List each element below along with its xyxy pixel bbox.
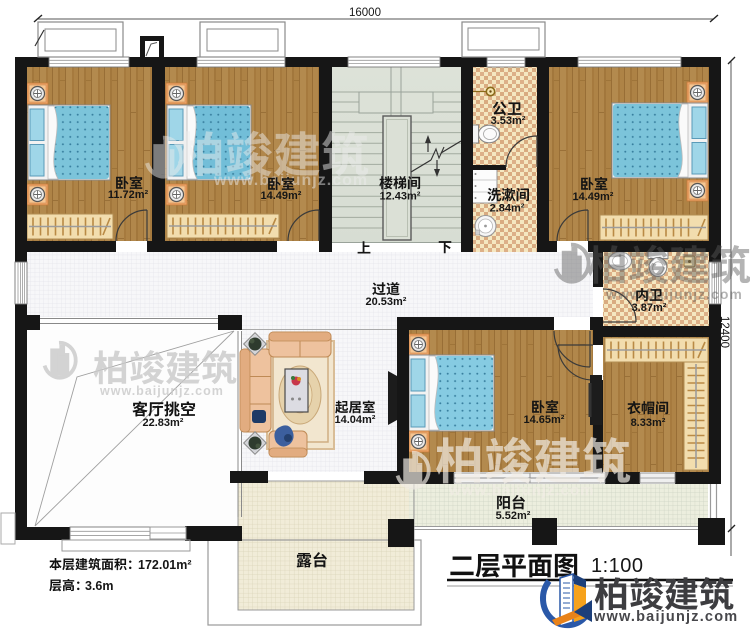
svg-text:3.6m: 3.6m: [85, 579, 114, 593]
svg-text:22.83m²: 22.83m²: [143, 417, 184, 429]
svg-text:1:100: 1:100: [591, 555, 644, 577]
svg-text:3.87m²: 3.87m²: [632, 302, 667, 314]
svg-text:12400: 12400: [718, 316, 730, 348]
svg-text:172.01m²: 172.01m²: [138, 558, 192, 572]
svg-text:16000: 16000: [349, 7, 381, 19]
svg-text:www.baijunjz.com: www.baijunjz.com: [593, 609, 738, 625]
svg-text:12.43m²: 12.43m²: [380, 191, 421, 203]
svg-text:2.84m²: 2.84m²: [490, 203, 525, 215]
svg-text:14.49m²: 14.49m²: [573, 191, 614, 203]
svg-text:14.49m²: 14.49m²: [261, 190, 302, 202]
svg-text:www.baijunjz.com: www.baijunjz.com: [448, 482, 594, 499]
svg-text:14.04m²: 14.04m²: [335, 414, 376, 426]
svg-text:20.53m²: 20.53m²: [366, 296, 407, 308]
svg-text:8.33m²: 8.33m²: [631, 417, 666, 429]
svg-text:5.52m²: 5.52m²: [496, 510, 531, 522]
svg-text:3.53m²: 3.53m²: [491, 115, 526, 127]
svg-text:11.72m²: 11.72m²: [108, 189, 149, 201]
svg-text:www.baijunjz.com: www.baijunjz.com: [605, 286, 743, 302]
svg-text:www.baijunjz.com: www.baijunjz.com: [99, 384, 224, 398]
svg-text:14.65m²: 14.65m²: [524, 414, 565, 426]
